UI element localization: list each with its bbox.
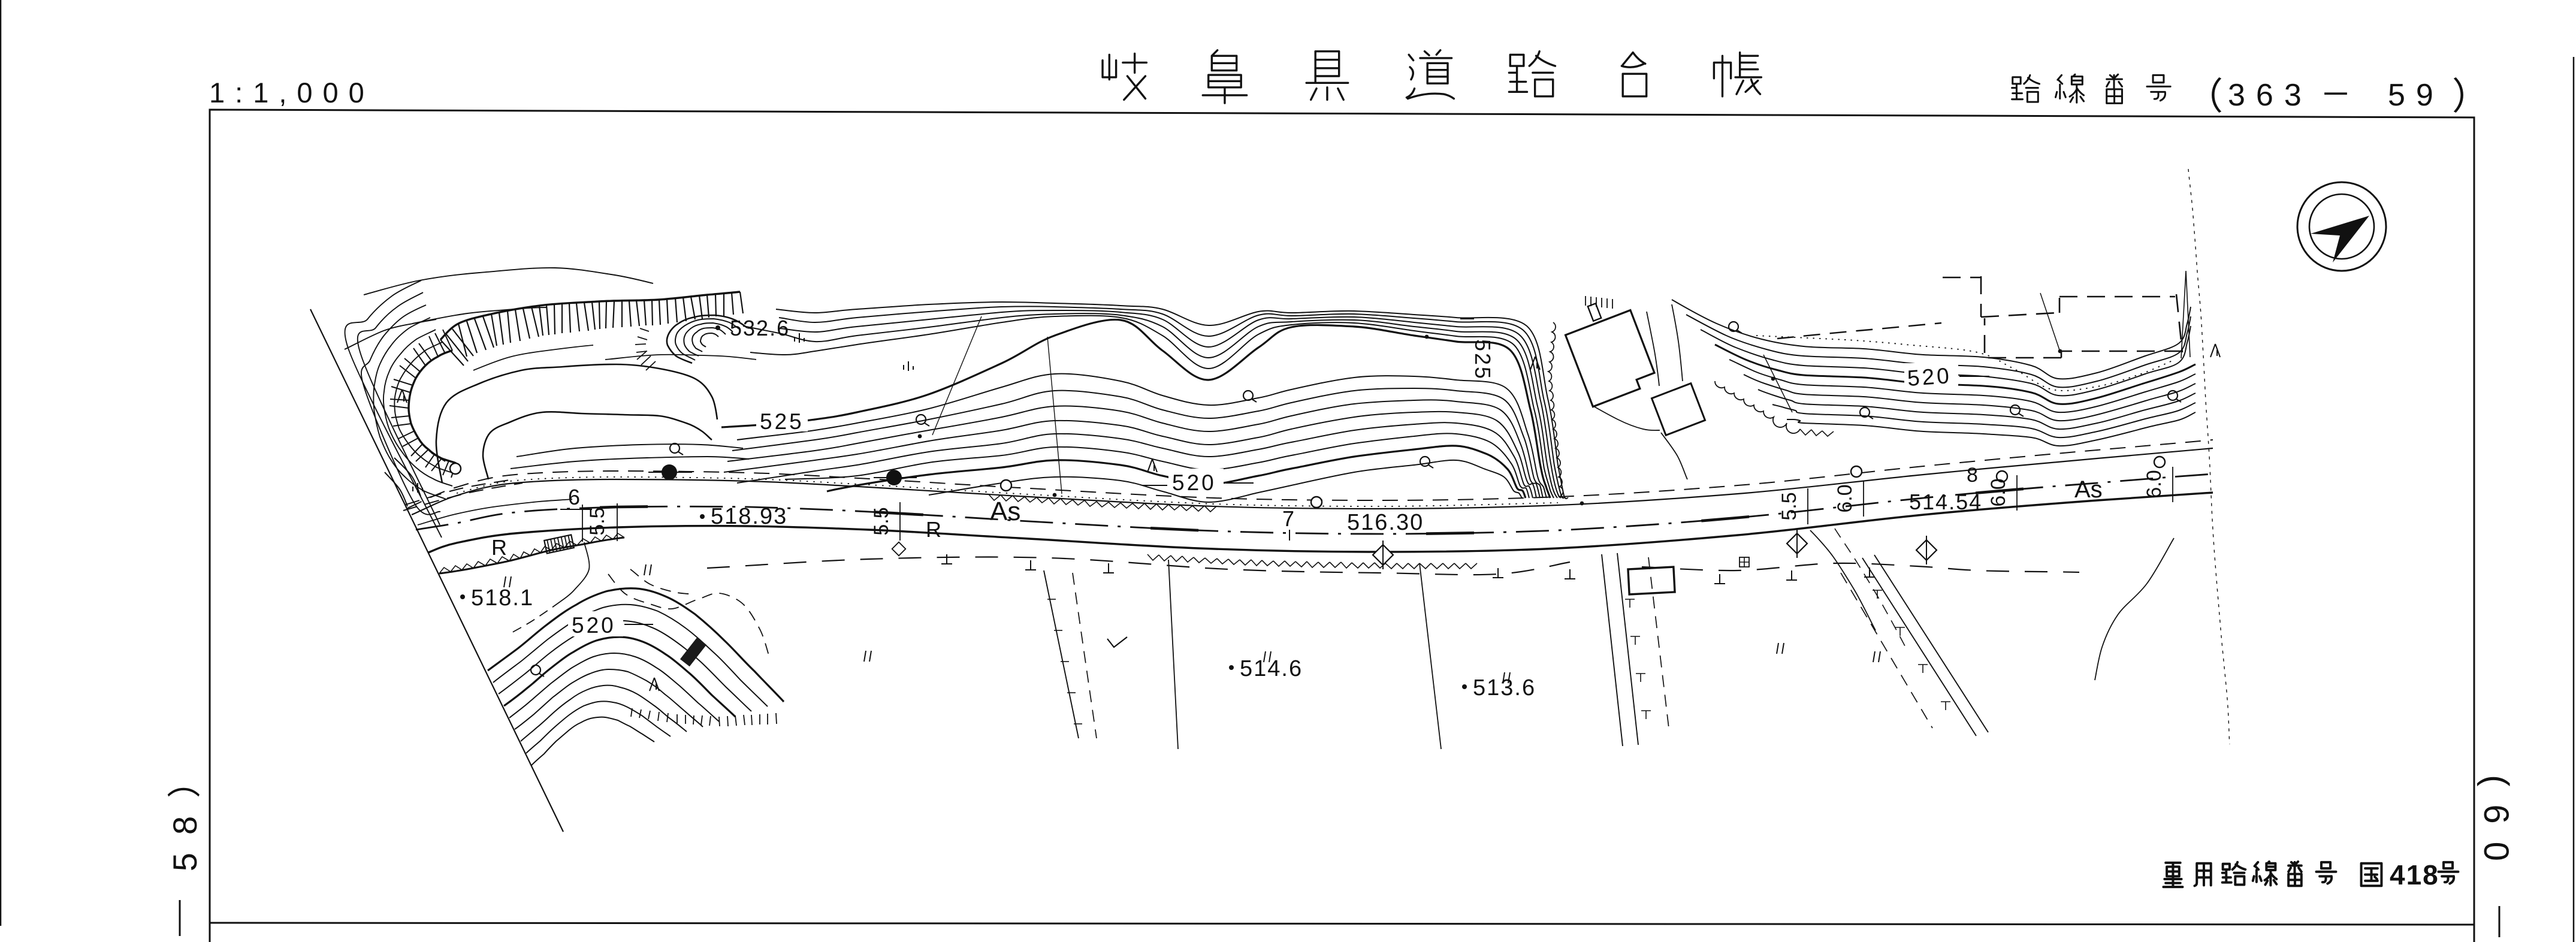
- svg-text:58）: 58）: [166, 747, 204, 871]
- svg-text:）: ）: [2452, 76, 2489, 117]
- svg-text:525: 525: [1470, 339, 1495, 381]
- svg-text:（: （: [2186, 76, 2223, 117]
- svg-text:6.0: 6.0: [2143, 470, 2166, 498]
- svg-text:514.6: 514.6: [1240, 656, 1303, 681]
- svg-text:7: 7: [1282, 506, 1294, 531]
- svg-text:516.30: 516.30: [1347, 510, 1424, 535]
- svg-text:525: 525: [760, 409, 804, 434]
- svg-text:R: R: [926, 517, 941, 542]
- svg-text:8: 8: [1967, 464, 1978, 487]
- svg-text:As: As: [990, 497, 1020, 526]
- svg-text:513.6: 513.6: [1473, 675, 1536, 701]
- svg-text:6.0: 6.0: [1987, 478, 2010, 506]
- svg-text:520: 520: [1907, 363, 1952, 391]
- svg-text:6: 6: [568, 485, 580, 509]
- svg-text:－: －: [2320, 78, 2351, 113]
- svg-text:520: 520: [1172, 470, 1216, 495]
- svg-text:1:1,000: 1:1,000: [209, 77, 375, 108]
- svg-text:As: As: [2074, 476, 2103, 503]
- svg-text:520: 520: [572, 613, 616, 638]
- svg-text:518.93: 518.93: [711, 504, 787, 529]
- svg-text:R: R: [491, 535, 507, 560]
- svg-text:518.1: 518.1: [471, 585, 534, 611]
- svg-text:(60: (60: [2477, 775, 2515, 879]
- svg-text:5.5: 5.5: [1778, 492, 1801, 520]
- svg-text:6.0: 6.0: [1834, 484, 1856, 512]
- svg-text:59: 59: [2388, 78, 2444, 113]
- svg-text:418: 418: [2390, 859, 2439, 890]
- svg-text:5.5: 5.5: [870, 507, 893, 535]
- svg-text:514.54: 514.54: [1909, 490, 1982, 514]
- svg-text:363: 363: [2228, 78, 2312, 113]
- svg-text:5.5: 5.5: [586, 507, 609, 535]
